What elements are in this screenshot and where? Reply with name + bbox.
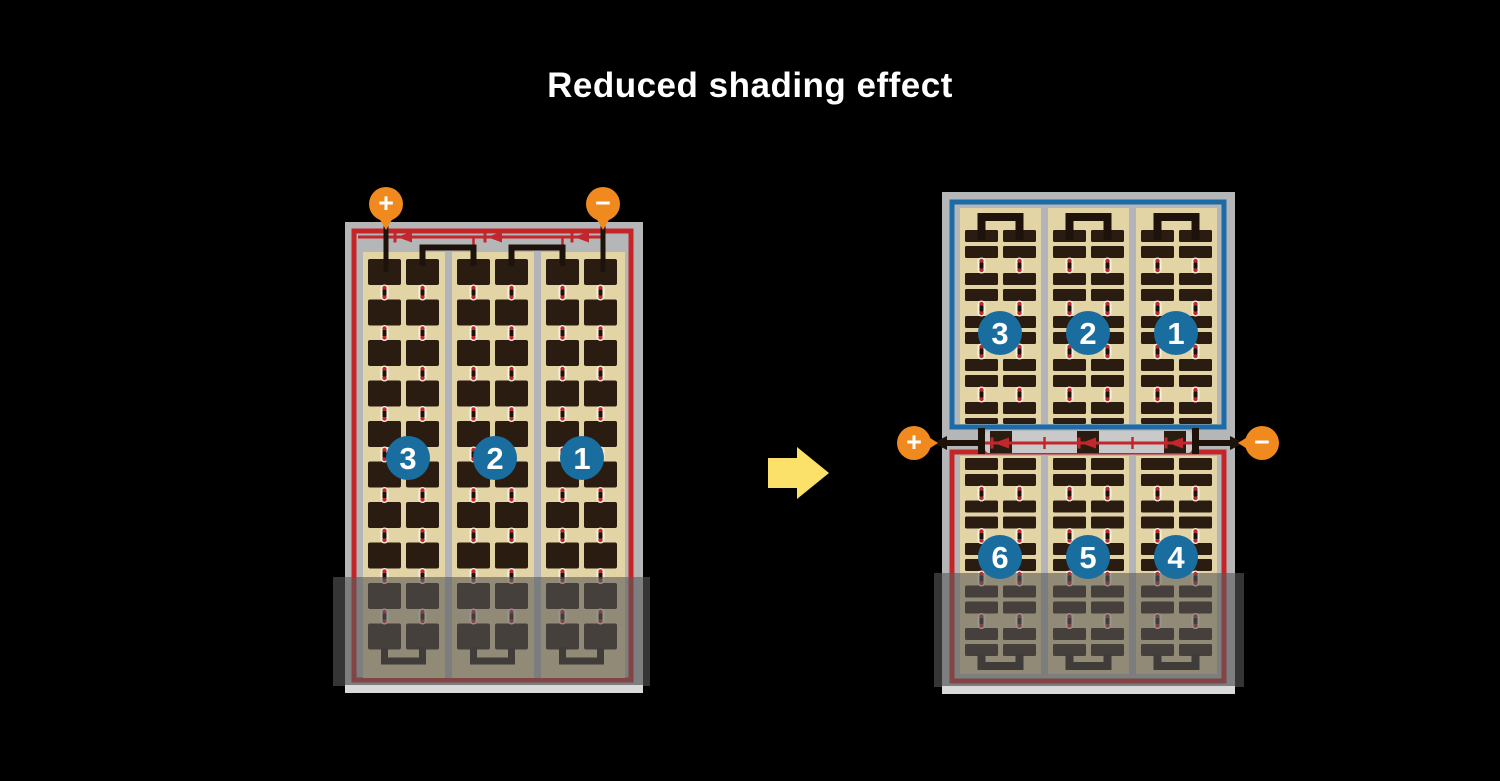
- left-panel-string-1-badge: 1: [560, 436, 604, 480]
- solar-cell: [368, 300, 401, 326]
- half-cut-cell: [1179, 474, 1212, 486]
- half-cut-cell: [1003, 375, 1036, 387]
- solar-cell: [546, 381, 579, 407]
- half-cut-cell: [965, 289, 998, 301]
- shade-overlay-left: [333, 577, 650, 686]
- half-cut-cell: [1003, 359, 1036, 371]
- right-panel-negative-lead: [1197, 440, 1232, 446]
- solar-cell: [368, 543, 401, 569]
- solar-cell: [368, 502, 401, 528]
- half-cut-cell: [1053, 402, 1086, 414]
- half-cut-cell: [1091, 246, 1124, 258]
- half-cut-cell: [1141, 517, 1174, 529]
- half-cut-cell: [1141, 474, 1174, 486]
- half-cut-cell: [1179, 458, 1212, 470]
- half-cut-cell: [1091, 273, 1124, 285]
- left-panel-string-2-badge: 2: [473, 436, 517, 480]
- half-cut-cell: [1003, 418, 1036, 424]
- right-panel-string-4-badge: 4: [1154, 535, 1198, 579]
- solar-cell: [546, 543, 579, 569]
- right-panel-string-3-badge: 3: [978, 311, 1022, 355]
- solar-cell: [406, 340, 439, 366]
- transition-arrow-icon: [768, 447, 829, 499]
- half-cut-cell: [1053, 246, 1086, 258]
- solar-panels-graphic: [0, 0, 1500, 781]
- half-cut-cell: [1179, 246, 1212, 258]
- half-cut-cell: [1091, 289, 1124, 301]
- half-cut-cell: [1003, 458, 1036, 470]
- solar-cell: [406, 381, 439, 407]
- half-cut-cell: [1141, 458, 1174, 470]
- half-cut-cell: [1179, 418, 1212, 424]
- half-cut-cell: [965, 458, 998, 470]
- half-cut-cell: [1179, 289, 1212, 301]
- half-cut-cell: [1141, 289, 1174, 301]
- solar-cell: [495, 300, 528, 326]
- solar-cell: [368, 340, 401, 366]
- half-cut-cell: [1091, 501, 1124, 513]
- half-cut-cell: [1053, 289, 1086, 301]
- half-cut-cell: [1091, 517, 1124, 529]
- solar-cell: [584, 340, 617, 366]
- half-cut-cell: [1141, 402, 1174, 414]
- left-panel-string-3-badge: 3: [386, 436, 430, 480]
- right-panel-string-5-badge: 5: [1066, 535, 1110, 579]
- solar-cell: [584, 502, 617, 528]
- half-cut-cell: [1141, 246, 1174, 258]
- half-cut-cell: [1053, 418, 1086, 424]
- solar-cell: [495, 543, 528, 569]
- right-panel-frame-bevel: [942, 686, 1235, 694]
- half-cut-cell: [1141, 501, 1174, 513]
- right-panel-string-separator: [1129, 208, 1136, 424]
- half-cut-cell: [1141, 273, 1174, 285]
- solar-cell: [584, 381, 617, 407]
- solar-cell: [495, 340, 528, 366]
- half-cut-cell: [1141, 359, 1174, 371]
- half-cut-cell: [1091, 418, 1124, 424]
- solar-cell: [406, 543, 439, 569]
- solar-cell: [406, 502, 439, 528]
- half-cut-cell: [965, 246, 998, 258]
- half-cut-cell: [1091, 474, 1124, 486]
- half-cut-cell: [1179, 359, 1212, 371]
- half-cut-cell: [1091, 359, 1124, 371]
- half-cut-cell: [1179, 501, 1212, 513]
- solar-cell: [495, 381, 528, 407]
- right-panel-positive-lead: [945, 440, 980, 446]
- right-panel-negative-terminal: −: [1245, 426, 1279, 460]
- right-panel-string-separator: [1041, 208, 1048, 424]
- solar-cell: [457, 381, 490, 407]
- right-panel-string-1-badge: 1: [1154, 311, 1198, 355]
- left-panel-frame-bevel: [345, 685, 643, 693]
- left-panel-positive-terminal: +: [369, 187, 403, 221]
- half-cut-cell: [965, 418, 998, 424]
- half-cut-cell: [1053, 474, 1086, 486]
- half-cut-cell: [1003, 402, 1036, 414]
- half-cut-cell: [1179, 375, 1212, 387]
- solar-cell: [457, 340, 490, 366]
- solar-cell: [457, 502, 490, 528]
- half-cut-cell: [1179, 402, 1212, 414]
- half-cut-cell: [1091, 402, 1124, 414]
- half-cut-cell: [1141, 375, 1174, 387]
- half-cut-cell: [1053, 517, 1086, 529]
- solar-cell: [368, 381, 401, 407]
- half-cut-cell: [965, 359, 998, 371]
- solar-cell: [495, 502, 528, 528]
- half-cut-cell: [1003, 289, 1036, 301]
- half-cut-cell: [1003, 501, 1036, 513]
- half-cut-cell: [965, 273, 998, 285]
- solar-cell: [457, 543, 490, 569]
- half-cut-cell: [965, 375, 998, 387]
- left-panel-negative-terminal: −: [586, 187, 620, 221]
- half-cut-cell: [1091, 458, 1124, 470]
- solar-cell: [457, 300, 490, 326]
- half-cut-cell: [965, 501, 998, 513]
- half-cut-cell: [1003, 246, 1036, 258]
- right-panel-positive-terminal: +: [897, 426, 931, 460]
- diagram-canvas: Reduced shading effect + − + − 3 2 1 3 2…: [0, 0, 1500, 781]
- solar-cell: [406, 300, 439, 326]
- half-cut-cell: [1053, 359, 1086, 371]
- half-cut-cell: [1053, 458, 1086, 470]
- solar-cell: [546, 340, 579, 366]
- half-cut-cell: [1003, 474, 1036, 486]
- half-cut-cell: [965, 517, 998, 529]
- half-cut-cell: [1053, 501, 1086, 513]
- half-cut-cell: [965, 474, 998, 486]
- half-cut-cell: [1053, 273, 1086, 285]
- shade-overlay-right: [934, 573, 1244, 687]
- solar-cell: [546, 300, 579, 326]
- half-cut-cell: [1141, 418, 1174, 424]
- half-cut-cell: [965, 402, 998, 414]
- right-panel-string-6-badge: 6: [978, 535, 1022, 579]
- half-cut-cell: [1003, 517, 1036, 529]
- solar-cell: [546, 502, 579, 528]
- solar-cell: [584, 543, 617, 569]
- half-cut-cell: [1053, 375, 1086, 387]
- half-cut-cell: [1179, 273, 1212, 285]
- solar-cell: [584, 300, 617, 326]
- half-cut-cell: [1091, 375, 1124, 387]
- right-panel-string-2-badge: 2: [1066, 311, 1110, 355]
- half-cut-cell: [1003, 273, 1036, 285]
- half-cut-cell: [1179, 517, 1212, 529]
